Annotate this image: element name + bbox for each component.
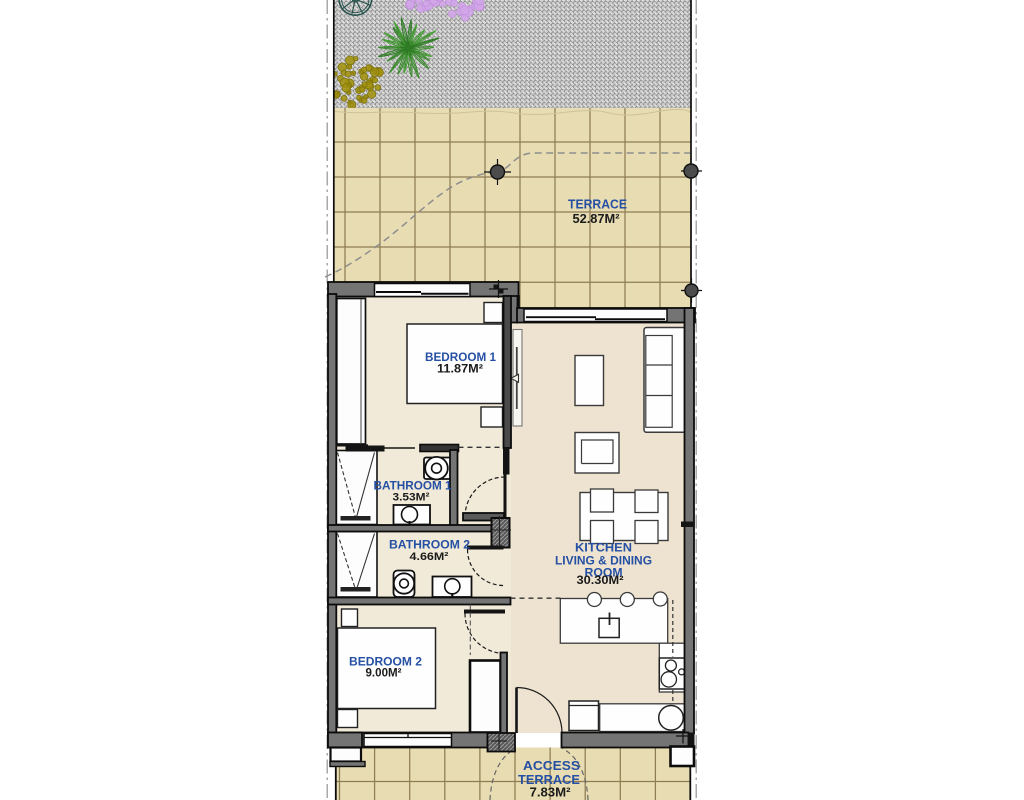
svg-text:9.00M²: 9.00M² xyxy=(366,666,402,680)
svg-text:ACCESS: ACCESS xyxy=(523,758,580,773)
svg-text:7.83M²: 7.83M² xyxy=(530,786,571,800)
svg-text:TERRACE: TERRACE xyxy=(568,197,627,212)
svg-text:BATHROOM 2: BATHROOM 2 xyxy=(389,540,470,552)
svg-text:KITCHEN: KITCHEN xyxy=(575,541,632,555)
svg-text:3.53M²: 3.53M² xyxy=(393,492,430,504)
svg-text:52.87M²: 52.87M² xyxy=(573,212,620,226)
svg-text:11.87M²: 11.87M² xyxy=(437,362,483,376)
svg-text:30.30M²: 30.30M² xyxy=(577,573,624,587)
svg-text:4.66M²: 4.66M² xyxy=(410,551,449,563)
